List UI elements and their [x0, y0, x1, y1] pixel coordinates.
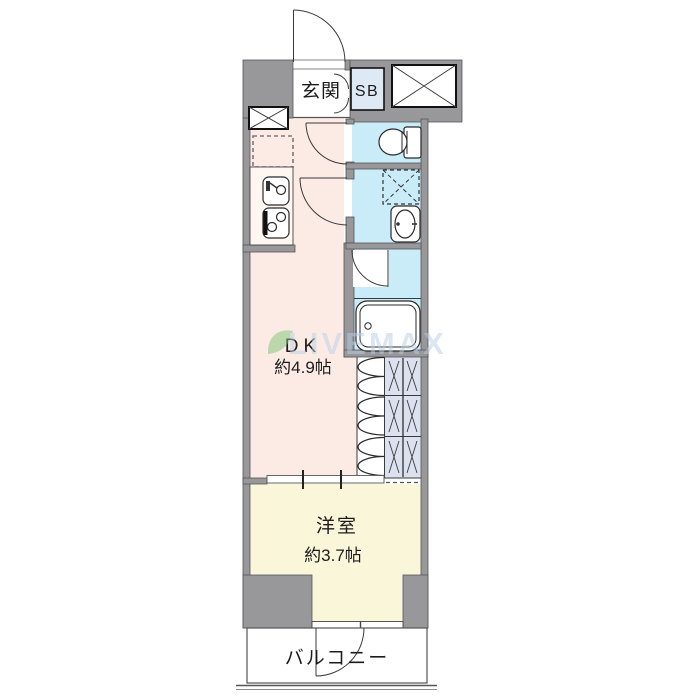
- wall-toilet-washroom-divider: [346, 163, 421, 169]
- balcony-label: バルコニー: [285, 648, 390, 669]
- kitchen-sink-icon: [263, 177, 289, 205]
- wall-sanitary-left-c: [346, 217, 354, 243]
- wall-partition-stub: [243, 478, 267, 484]
- wall-kitchen-stub: [243, 245, 295, 252]
- vanity-sink-icon: [391, 206, 420, 242]
- sliding-door: [267, 476, 384, 484]
- wall-washroom-bath-divider: [346, 243, 421, 249]
- stove-icon: [263, 208, 289, 238]
- floorplan-page: 玄関 SB DK 約4.9帖 洋室 約3.7帖 バルコニー LIVEMAX: [0, 0, 700, 700]
- wall-bottom-right-block: [403, 575, 428, 628]
- genkan-label: 玄関: [301, 80, 341, 102]
- toilet-icon: [379, 127, 421, 158]
- watermark: LIVEMAX: [268, 326, 447, 361]
- pipe-space-box: [249, 107, 288, 129]
- entrance-door-arc: [294, 10, 346, 62]
- balcony-window: [312, 622, 403, 629]
- wall-right: [421, 119, 428, 628]
- floorplan-drawing: 玄関 SB DK 約4.9帖 洋室 約3.7帖 バルコニー LIVEMAX: [0, 0, 700, 700]
- wall-sanitary-left-a: [346, 119, 354, 124]
- western-room-label: 洋室: [316, 515, 358, 537]
- wall-bottom-left-block: [243, 575, 312, 628]
- elevator-shaft-box: [392, 65, 456, 107]
- western-room-size-label: 約3.7帖: [304, 546, 362, 565]
- western-room-floor-lower: [312, 575, 403, 622]
- wall-left: [243, 118, 250, 628]
- watermark-text: LIVEMAX: [288, 326, 447, 361]
- wall-top-sliver: [345, 60, 350, 70]
- shoe-box-label: SB: [355, 83, 379, 100]
- entrance-threshold: [293, 60, 345, 69]
